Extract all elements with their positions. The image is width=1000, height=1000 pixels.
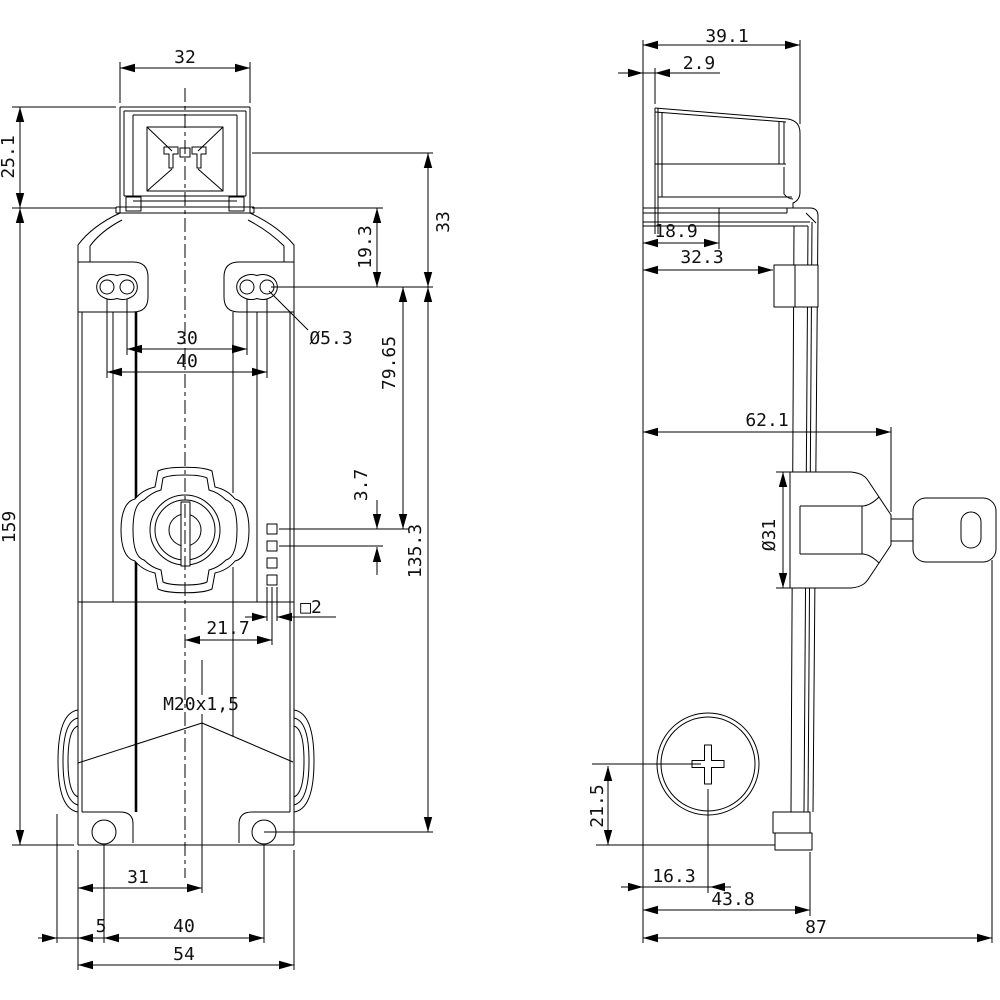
dim-gland-overhang: 5 [96,916,107,937]
dim-mount-hole-dia: Ø5.3 [309,328,352,349]
front-contact-squares [267,524,277,585]
dim-contact-pitch: 3.7 [351,469,372,502]
dim-head-depth: 39.1 [705,26,748,47]
dim-shoulder-to-holes: 19.3 [355,225,376,268]
dim-head-line-to-holes: 33 [433,211,454,233]
dim-total-depth: 87 [805,917,827,938]
dim-total-length: 159 [0,511,20,544]
side-base [643,812,812,850]
drawing-page: 32 25.1 159 19.3 33 Ø5.3 30 40 79.65 3.7… [0,0,1000,1000]
dim-screw-center-height: 21.5 [587,784,608,827]
dim-hole-pitch-inner: 30 [176,328,198,349]
side-mounting-bracket [774,265,818,307]
dim-conduit-thread: M20x1,5 [163,694,239,715]
dim-contact-square: □2 [300,597,322,618]
dim-screw-center-offset: 16.3 [652,866,695,887]
side-head [655,108,800,234]
side-view [592,108,996,893]
dim-bracket-depth: 32.3 [680,247,723,268]
dim-hole-rows-span: 135.3 [405,524,426,578]
dim-face-offset: 2.9 [683,53,716,74]
dim-hole-pitch-outer: 40 [176,351,198,372]
front-view [58,88,314,893]
dim-head-height: 25.1 [0,135,19,178]
front-cable-glands [58,710,314,812]
front-bottom-screw-hole-left [92,820,116,844]
dim-contact-offset: 21.7 [206,618,249,639]
dim-head-width: 32 [174,47,196,68]
dim-flange-depth: 18.9 [654,221,697,242]
dim-conduit-offset: 31 [127,867,149,888]
dim-lock-depth: 62.1 [745,410,788,431]
dim-bottom-hole-pitch: 40 [173,916,195,937]
side-lock-cylinder [790,472,996,588]
dim-base-depth: 43.8 [711,889,754,910]
front-mounting-lugs [78,262,294,312]
dim-holes-to-contact: 79.65 [379,336,400,390]
key-head [913,498,996,562]
dimension-drawing-canvas: 32 25.1 159 19.3 33 Ø5.3 30 40 79.65 3.7… [0,0,1000,1000]
dim-lock-dia: Ø31 [759,519,780,552]
dim-body-width: 54 [173,944,195,965]
